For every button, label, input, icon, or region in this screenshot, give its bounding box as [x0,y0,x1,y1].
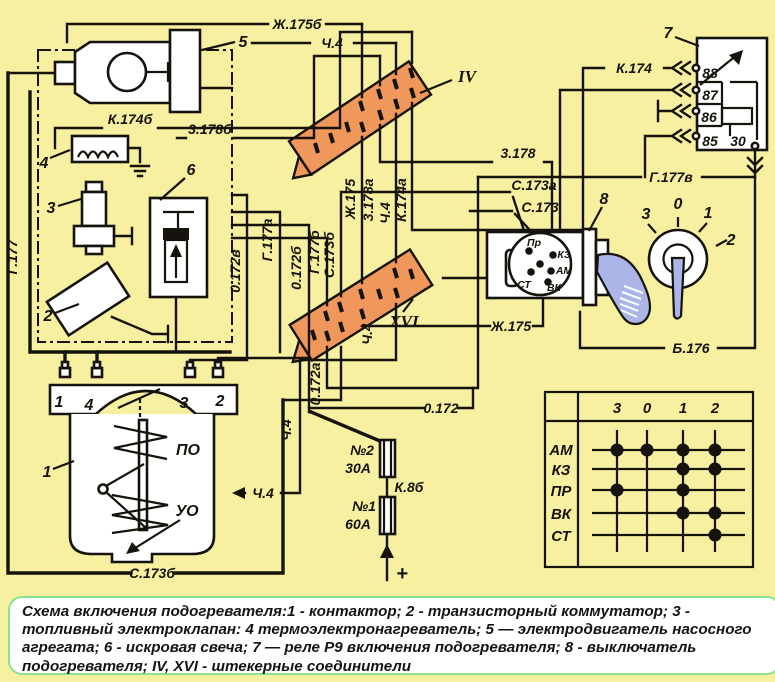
relay-p9 [675,37,767,150]
table-col-0: 0 [643,400,652,417]
label-connector-iv: IV [457,67,478,86]
table-col-2: 2 [710,400,720,417]
fuse1-name: №1 [352,498,376,514]
wire-label-z178: 3.178 [500,145,535,161]
wire-label-k8b: К.8б [395,479,424,495]
contactor-terminals [60,362,223,377]
wire-label-s173b-bottom: С.173б [129,565,175,581]
contactor-terminal-3: 3 [180,395,189,412]
wire-label-k174: К.174 [616,60,652,76]
wire-label-ch4-xvi: Ч.4 [359,323,375,345]
wire-label-zh175-v: Ж.175 [342,179,358,220]
wire-label-o172: 0.172 [423,400,458,416]
fuse-labels: №2 30А №1 60А + [345,442,408,585]
wire-label-s173: С.173 [521,199,559,215]
fuse2-rating: 30А [345,460,371,476]
wire-label-zh175-h: Ж.175 [490,318,531,334]
relay-pin-88: 88 [702,65,718,81]
wire-label-b176: Б.176 [672,340,709,356]
mode-table: 3 0 1 2 АМ КЗ ПР ВК СТ [545,392,753,567]
contactor-coil-po: ПО [176,442,201,459]
wire-label-ch4-contactor: Ч.4 [252,485,274,501]
pump-motor [55,30,235,112]
rotary-pos-1: 1 [704,205,713,222]
wire-label-ch4-v: Ч.4 [377,202,393,224]
wire-label-k174a: К.174а [393,178,409,222]
rotary-pos-3: 3 [642,206,651,223]
wire-label-o172a: 0.172а [307,362,323,405]
switch-terminal-vk: ВК [547,282,563,294]
wiring-diagram: 3 0 1 2 АМ КЗ ПР ВК СТ Ж.175б Ч.4 К.174б… [0,0,775,601]
rotary-lever[interactable] [672,258,684,319]
label-contactor: 1 [43,464,52,481]
switch-terminal-st: СТ [517,279,532,291]
contactor-terminal-4: 4 [84,397,94,414]
relay-pin-85: 85 [702,133,718,149]
wire-label-zh175b: Ж.175б [272,16,322,32]
wire-label-o172b: 0.172б [288,246,304,290]
table-row-am: АМ [548,442,573,459]
label-heater: 4 [39,155,49,172]
rotary-pos-2: 2 [726,232,736,249]
label-valve: 3 [47,200,56,217]
transistor-commutator [47,263,129,336]
table-row-pr: ПР [551,483,573,500]
table-row-kz: КЗ [552,462,571,479]
label-connector-xvi: XVI [388,312,420,331]
caption: Схема включения подогревателя:1 - контак… [8,596,775,675]
thermo-heater [50,136,149,176]
mode-table-grid [592,430,745,552]
switch-terminal-am: АМ [555,265,573,277]
table-col-3: 3 [613,400,622,417]
relay-pin-86: 86 [701,109,717,125]
wire-label-k174b: К.174б [108,111,153,127]
relay-pin-30: 30 [730,133,746,149]
contactor [50,362,237,562]
label-commutator: 2 [43,308,53,325]
connector-iv [275,61,431,184]
rotary-switch [648,217,727,319]
wire-label-z178a: 3.178а [360,178,376,221]
rotary-pos-0: 0 [674,196,683,213]
spark-plug [150,178,207,297]
wire-label-g177b: Г.177б [306,230,322,274]
fuel-valve [58,182,132,254]
table-row-st: СТ [551,528,572,545]
wire-label-g177v: Г.177в [649,169,693,185]
table-col-1: 1 [679,400,687,417]
fuse1-rating: 60А [345,516,371,532]
wire-label-s173b: С.173б [321,232,337,278]
switch-terminal-kz: КЗ [557,249,570,261]
fuse2-name: №2 [350,442,374,458]
wire-label-g177a: Г.177а [259,218,275,261]
wire-label-z178b: 3.178б [188,121,232,137]
label-spark: 6 [187,162,196,179]
wire-label-s173a: С.173а [511,177,556,193]
contactor-coil-uo: УО [175,503,199,520]
wire-label-o172v: 0.172в [227,249,243,293]
contactor-terminal-2: 2 [215,393,225,410]
label-switch: 8 [600,191,609,208]
relay-pin-87: 87 [702,87,719,103]
battery-plus: + [396,563,408,585]
contactor-terminal-1: 1 [55,394,64,411]
table-row-vk: ВК [551,506,573,523]
label-motor: 5 [239,34,249,51]
caption-text: Схема включения подогревателя:1 - контак… [22,603,752,675]
wire-label-g177: Г.177 [4,238,20,274]
switch-terminal-pr: Пр [527,237,542,249]
label-relay: 7 [664,25,674,42]
wire-label-ch4-top: Ч.4 [321,35,343,51]
wire-label-ch4-v2: Ч.4 [278,419,294,441]
